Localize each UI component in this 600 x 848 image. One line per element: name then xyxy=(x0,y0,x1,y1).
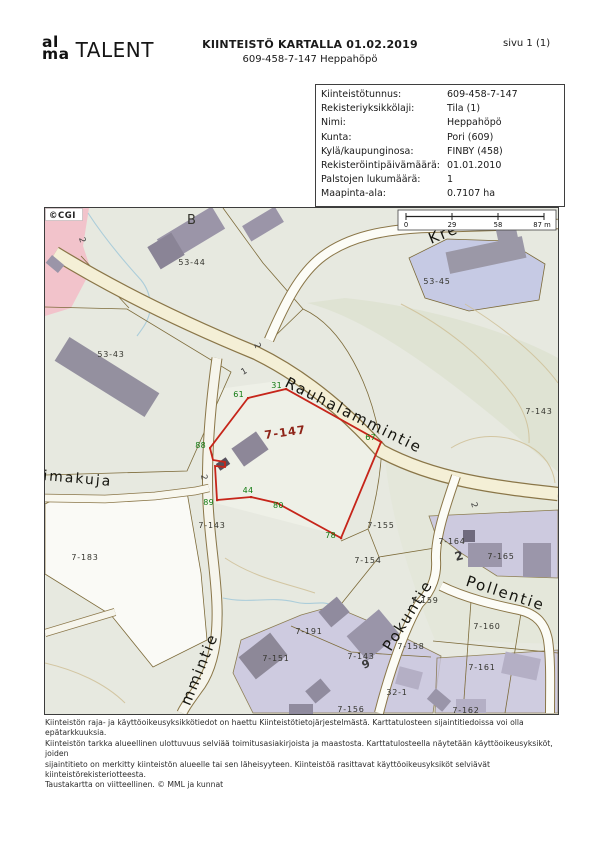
page-number: sivu 1 (1) xyxy=(503,38,550,49)
scale-tick-label: 58 xyxy=(494,221,503,229)
logo-mark: al ma xyxy=(42,37,70,60)
info-label: Rekisteröintipäivämäärä: xyxy=(321,159,447,173)
parcel-label: 7-162 xyxy=(452,706,479,715)
info-value: 1 xyxy=(447,173,559,187)
scale-tick-label: 0 xyxy=(404,221,408,229)
info-row: Kunta:Pori (609) xyxy=(316,131,564,145)
field-7-183 xyxy=(45,492,207,667)
header-title-block: KIINTEISTÖ KARTALLA 01.02.2019 609-458-7… xyxy=(150,38,470,65)
parcel-label: 7-158 xyxy=(397,642,424,651)
info-value: 01.01.2010 xyxy=(447,159,559,173)
info-value: 609-458-7-147 xyxy=(447,88,559,102)
parcel-label: 32-1 xyxy=(386,688,407,697)
parcel-label: 7-159 xyxy=(411,596,438,605)
vertex-dot xyxy=(380,441,382,443)
parcel-label: 53-45 xyxy=(423,277,450,286)
vertex-dot xyxy=(216,499,218,501)
vertex-label: 89 xyxy=(203,498,214,507)
building-letter-b: B xyxy=(187,213,197,228)
map-copyright: ©CGI xyxy=(49,211,76,221)
parcel-label: 7-164 xyxy=(438,537,465,546)
building xyxy=(523,543,551,577)
street-label-imakuja: imakuja xyxy=(44,468,113,490)
alma-talent-logo: al ma TALENT xyxy=(42,37,154,60)
vertex-label: 67 xyxy=(365,433,376,442)
parcel-label: 7-151 xyxy=(262,654,289,663)
parcel-label: 7-143 xyxy=(525,407,552,416)
info-label: Kiinteistötunnus: xyxy=(321,88,447,102)
parcel-boundary xyxy=(341,529,379,603)
parcel-label: 7-156 xyxy=(337,705,364,714)
vertex-label: 88 xyxy=(195,441,206,450)
logo-mark-line2: ma xyxy=(42,49,70,61)
parcel-label: 7-143 xyxy=(198,521,225,530)
road-lane xyxy=(45,612,115,633)
info-label: Kylä/kaupunginosa: xyxy=(321,145,447,159)
info-row: Kiinteistötunnus:609-458-7-147 xyxy=(316,88,564,102)
info-value: FINBY (458) xyxy=(447,145,559,159)
cadastral-map: RauhalammintieKreimakujammintiePokuntieP… xyxy=(44,207,559,715)
parcel-label: 53-44 xyxy=(178,258,205,267)
vertex-dot xyxy=(340,537,342,539)
info-label: Nimi: xyxy=(321,116,447,130)
vertex-label: 61 xyxy=(233,390,244,399)
info-row: Nimi:Heppahöpö xyxy=(316,116,564,130)
vertex-dot xyxy=(247,397,249,399)
document-subtitle: 609-458-7-147 Heppahöpö xyxy=(150,54,470,65)
info-value: Heppahöpö xyxy=(447,116,559,130)
vertex-dot xyxy=(209,447,211,449)
info-label: Rekisteriyksikkölaji: xyxy=(321,102,447,116)
info-value: Pori (609) xyxy=(447,131,559,145)
building xyxy=(289,704,313,715)
map-copyright-badge: ©CGI xyxy=(46,209,83,222)
info-row: Maapinta-ala:0.7107 ha xyxy=(316,187,564,201)
vertex-label: 44 xyxy=(243,486,254,495)
info-value: 0.7107 ha xyxy=(447,187,559,201)
document-title: KIINTEISTÖ KARTALLA 01.02.2019 xyxy=(150,38,470,51)
address-label: 1 xyxy=(240,366,250,377)
info-label: Kunta: xyxy=(321,131,447,145)
building xyxy=(242,207,284,242)
contour-line xyxy=(225,558,315,593)
parcel-label: 7-155 xyxy=(367,521,394,530)
info-row: Palstojen lukumäärä:1 xyxy=(316,173,564,187)
info-row: Rekisteröintipäivämäärä:01.01.2010 xyxy=(316,159,564,173)
scale-tick-label: 87 m xyxy=(533,221,551,229)
vertex-label: 78 xyxy=(325,531,336,540)
parcel-label: 7-165 xyxy=(487,552,514,561)
document-page: { "header": { "logo": { "line1": "al", "… xyxy=(0,0,600,848)
parcel-label: 7-154 xyxy=(354,556,381,565)
scale-bar: 0 29 58 87 m xyxy=(398,210,556,230)
stream xyxy=(223,598,331,605)
parcel-label: 7-161 xyxy=(468,663,495,672)
disclaimer-line: Kiinteistön tarkka alueellinen ulottuvuu… xyxy=(45,739,558,760)
info-label: Palstojen lukumäärä: xyxy=(321,173,447,187)
parcel-label: 7-191 xyxy=(295,627,322,636)
logo-wordmark: TALENT xyxy=(76,41,154,60)
disclaimer-line: Kiinteistön raja- ja käyttöoikeusyksikkö… xyxy=(45,718,558,739)
info-label: Maapinta-ala: xyxy=(321,187,447,201)
parcel-label: 53-43 xyxy=(97,350,124,359)
scale-tick-label: 29 xyxy=(448,221,457,229)
info-value: Tila (1) xyxy=(447,102,559,116)
parcel-label: 7-160 xyxy=(473,622,500,631)
property-info-panel: Kiinteistötunnus:609-458-7-147 Rekisteri… xyxy=(315,84,565,207)
disclaimer-footer: Kiinteistön raja- ja käyttöoikeusyksikkö… xyxy=(45,718,558,791)
disclaimer-line: Taustakartta on viitteellinen. © MML ja … xyxy=(45,780,558,790)
disclaimer-line: sijaintitieto on merkitty kiinteistön al… xyxy=(45,760,558,781)
info-row: Rekisteriyksikkölaji:Tila (1) xyxy=(316,102,564,116)
vertex-dot xyxy=(250,496,252,498)
address-label: 2 xyxy=(76,236,87,244)
contour-line xyxy=(45,663,125,703)
vertex-label: 80 xyxy=(273,501,284,510)
vertex-label: 31 xyxy=(271,381,282,390)
info-row: Kylä/kaupunginosa:FINBY (458) xyxy=(316,145,564,159)
parcel-label: 7-183 xyxy=(71,553,98,562)
